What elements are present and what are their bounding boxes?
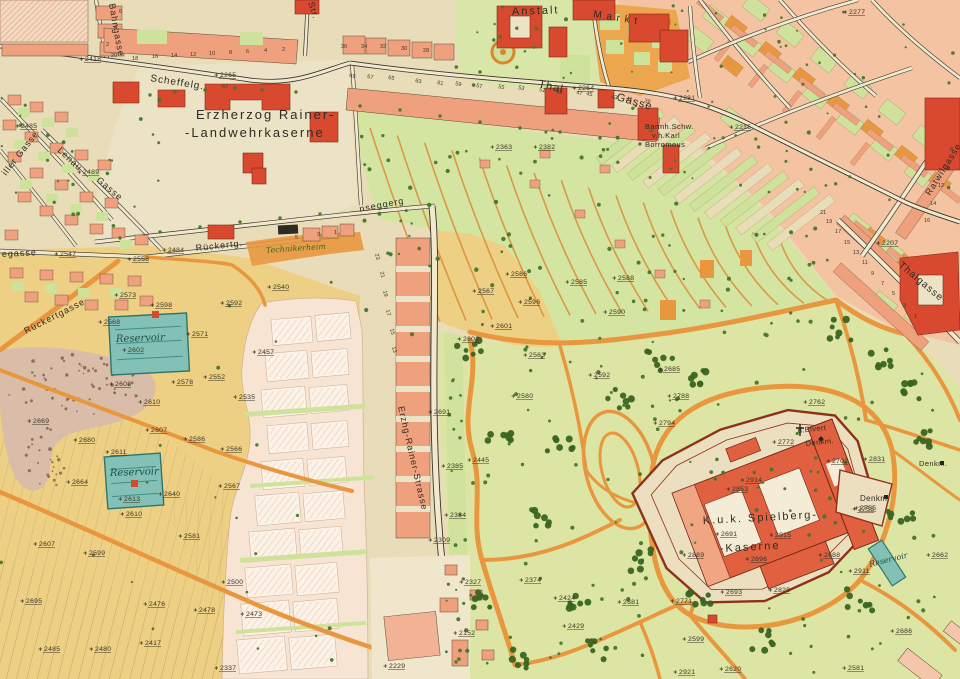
elevation-label: 2680 <box>79 437 95 444</box>
tree-icon <box>648 546 655 553</box>
elevation-label: 2281 <box>679 95 695 102</box>
elevation-label: 2693 <box>726 589 742 596</box>
tree-icon <box>399 220 402 223</box>
elevation-label: 2602 <box>463 336 479 343</box>
elevation-label: 2424 <box>559 595 575 602</box>
tree-icon <box>828 496 832 500</box>
tree-icon <box>763 233 766 236</box>
elevation-label: 2417 <box>145 640 161 647</box>
tree-icon <box>417 247 421 251</box>
tree-icon <box>813 227 817 231</box>
tree-icon <box>726 288 730 292</box>
tree-icon <box>692 601 699 608</box>
house <box>70 272 83 282</box>
tree-icon <box>471 481 475 485</box>
elevation-label: 2607 <box>151 427 167 434</box>
tree-icon <box>757 486 760 489</box>
elevation-label: 2681 <box>623 599 639 606</box>
tree-icon <box>814 456 817 459</box>
building-plot <box>237 636 288 674</box>
street-label: Barmh.Schw. <box>645 122 694 131</box>
tree-icon <box>508 430 515 437</box>
house-number: 57 <box>476 83 483 90</box>
tree-icon <box>870 401 874 405</box>
tree-icon <box>521 463 524 466</box>
elevation-label: 2794 <box>659 420 675 427</box>
tree-icon <box>428 265 431 268</box>
tree-icon <box>844 416 848 420</box>
tree-icon <box>661 233 664 236</box>
tree-icon <box>818 61 821 64</box>
tree-icon <box>721 310 724 313</box>
tree-icon <box>808 263 812 267</box>
tree-icon <box>652 357 658 363</box>
tree-icon <box>238 220 241 223</box>
tree-icon <box>862 530 865 533</box>
tree-icon <box>878 584 881 587</box>
tree-icon <box>690 523 693 526</box>
street-label: Denkm. <box>860 494 890 503</box>
elevation-label: 2374 <box>525 577 541 584</box>
tree-icon <box>472 595 479 602</box>
tree-icon <box>845 604 851 610</box>
tree-icon <box>783 487 786 490</box>
tree-icon <box>758 627 764 633</box>
house-number: 55 <box>498 84 505 91</box>
tree-icon <box>585 599 592 606</box>
tree-icon <box>625 404 630 409</box>
tree-icon <box>533 160 537 164</box>
tree-icon <box>814 489 818 493</box>
house <box>115 300 128 310</box>
tree-icon <box>785 44 788 47</box>
tree-icon <box>548 420 551 423</box>
tree-icon <box>857 417 860 420</box>
tree-icon <box>709 470 713 474</box>
map-viewport[interactable]: BahngasseStr.Scheffelg.AnstaltM a r k tT… <box>0 0 960 679</box>
tree-icon <box>535 539 538 542</box>
tree-icon <box>456 151 460 155</box>
tree-icon <box>754 233 758 237</box>
elevation-label: 2586 <box>189 436 205 443</box>
tree-icon <box>233 86 236 89</box>
tree-icon <box>408 186 412 190</box>
tree-icon <box>876 362 882 368</box>
tree-icon <box>57 180 59 182</box>
elevation-label: 2571 <box>192 331 208 338</box>
tree-icon <box>460 420 463 423</box>
tree-icon <box>553 437 559 443</box>
historical-city-map: BahngasseStr.Scheffelg.AnstaltM a r k tT… <box>0 0 960 679</box>
elevation-label: 2620 <box>725 666 741 673</box>
building-plot <box>267 422 309 453</box>
tree-icon <box>660 355 666 361</box>
tree-icon <box>789 652 792 655</box>
elevation-label: 2599 <box>688 636 704 643</box>
house-number: 10 <box>944 166 950 172</box>
tree-icon <box>360 135 364 139</box>
tree-icon <box>820 559 823 562</box>
elevation-label: 2484 <box>168 247 184 254</box>
tree-icon <box>377 212 381 216</box>
elevation-label: 2476 <box>149 601 165 608</box>
building-plot <box>315 313 351 342</box>
tree-icon <box>471 604 477 610</box>
elevation-label: 2207 <box>882 240 898 247</box>
tree-icon <box>472 83 476 87</box>
tree-icon <box>445 650 448 653</box>
tree-icon <box>549 656 552 659</box>
tree-icon <box>501 5 504 8</box>
tree-icon <box>139 117 143 121</box>
elevation-label: 2598 <box>156 302 172 309</box>
tree-icon <box>368 167 372 171</box>
tree-icon <box>858 599 863 604</box>
tree-icon <box>598 136 601 139</box>
house <box>540 150 550 158</box>
tree-icon <box>638 472 642 476</box>
house-number: 67 <box>222 84 228 90</box>
tree-icon <box>805 235 808 238</box>
elevation-label: 2568 <box>104 319 120 326</box>
tree-icon <box>71 213 75 217</box>
house <box>40 270 53 280</box>
elevation-label: 2915 <box>775 532 791 539</box>
tree-icon <box>648 270 652 274</box>
tree-icon <box>260 88 263 91</box>
elevation-label: 2611 <box>111 449 127 456</box>
house <box>8 95 21 105</box>
tree-icon <box>715 458 719 462</box>
tree-icon <box>568 446 574 452</box>
tree-icon <box>641 375 645 379</box>
elevation-label: 2473 <box>246 611 262 618</box>
tree-icon <box>458 436 461 439</box>
house-number: 61 <box>437 80 444 87</box>
tree-icon <box>46 133 50 137</box>
tree-icon <box>905 46 907 48</box>
tree-icon <box>644 349 650 355</box>
tree-icon <box>544 131 547 134</box>
tree-icon <box>887 358 893 364</box>
house-number: 30 <box>401 46 407 52</box>
tree-icon <box>566 436 573 443</box>
tree-icon <box>777 40 781 44</box>
house-number: 5 <box>295 235 298 241</box>
tree-icon <box>916 396 921 401</box>
garden-plot <box>120 240 132 249</box>
tree-icon <box>639 541 643 545</box>
tree-icon <box>19 115 21 117</box>
elevation-label: 2327 <box>465 579 481 586</box>
tree-icon <box>822 514 826 518</box>
house-number: 16 <box>152 54 158 60</box>
tree-icon <box>753 471 756 474</box>
house <box>575 210 585 218</box>
tree-icon <box>607 247 611 251</box>
garden-plot <box>96 212 108 221</box>
tree-icon <box>533 523 539 529</box>
house-number: 28 <box>423 48 429 54</box>
tree-icon <box>786 150 788 152</box>
tree-icon <box>498 35 502 39</box>
tree-icon <box>888 363 894 369</box>
tree-icon <box>457 657 461 661</box>
tree-icon <box>784 160 787 163</box>
tree-icon <box>551 129 554 132</box>
house <box>5 230 18 240</box>
tree-icon <box>947 186 950 189</box>
tree-icon <box>652 235 655 238</box>
tree-icon <box>459 394 462 397</box>
tree-icon <box>598 337 601 340</box>
tree-icon <box>318 212 321 215</box>
house-number: 14 <box>930 201 936 207</box>
tree-icon <box>599 638 602 641</box>
tree-icon <box>465 150 468 153</box>
house <box>600 165 610 173</box>
tree-icon <box>871 647 874 650</box>
tree-icon <box>509 656 516 663</box>
elevation-label: 2540 <box>273 284 289 291</box>
tree-icon <box>615 521 617 523</box>
tree-icon <box>1 145 3 147</box>
tree-icon <box>451 470 453 472</box>
tree-icon <box>631 71 633 73</box>
tree-icon <box>24 104 27 107</box>
orchard-plot <box>700 260 714 278</box>
tree-icon <box>682 309 685 312</box>
tree-icon <box>447 583 450 586</box>
house-number: 49 <box>556 89 563 96</box>
tree-icon <box>774 95 777 98</box>
elevation-label: 2610 <box>126 511 142 518</box>
tree-icon <box>216 366 220 370</box>
tree-icon <box>768 191 771 194</box>
elevation-label: 2772 <box>778 439 794 446</box>
tree-icon <box>847 635 851 639</box>
elevation-label: 2337 <box>220 665 236 672</box>
tree-icon <box>801 617 805 621</box>
tree-icon <box>438 114 441 117</box>
house-number: 12 <box>190 52 196 58</box>
tree-icon <box>840 571 843 574</box>
tree-icon <box>455 65 459 69</box>
house <box>100 274 113 284</box>
tree-icon <box>674 202 678 206</box>
tree-icon <box>947 81 950 84</box>
tree-icon <box>509 636 512 639</box>
elevation-label: 2755 <box>858 506 874 513</box>
tree-icon <box>113 392 116 395</box>
tree-icon <box>254 552 257 555</box>
tree-icon <box>275 340 278 343</box>
elevation-label: 2608 <box>115 381 131 388</box>
tree-icon <box>653 417 657 421</box>
tree-icon <box>910 516 916 522</box>
tree-icon <box>643 308 647 312</box>
tree-icon <box>926 443 933 450</box>
house-number: 4 <box>264 48 267 54</box>
tree-icon <box>678 409 681 412</box>
tree-icon <box>831 317 837 323</box>
elevation-label: 2695 <box>26 598 42 605</box>
tree-icon <box>690 381 697 388</box>
tree-icon <box>770 322 773 325</box>
tree-icon <box>854 73 856 75</box>
tree-icon <box>715 12 718 15</box>
tree-icon <box>501 250 504 253</box>
tree-icon <box>454 660 457 663</box>
building-plot <box>245 564 293 598</box>
tree-icon <box>599 154 603 158</box>
tree-icon <box>389 252 393 256</box>
tree-icon <box>796 30 798 32</box>
house-number: 67 <box>367 74 374 81</box>
tree-icon <box>928 428 933 433</box>
tree-icon <box>330 281 333 284</box>
tree-icon <box>507 232 511 236</box>
tree-icon <box>203 88 206 91</box>
tree-icon <box>809 168 812 171</box>
orchard-plot <box>740 250 752 266</box>
tree-icon <box>670 71 672 73</box>
tree-icon <box>801 83 804 86</box>
tree-icon <box>669 399 671 401</box>
tree-icon <box>118 236 121 239</box>
tree-icon <box>848 338 853 343</box>
tree-icon <box>789 311 792 314</box>
tree-icon <box>912 536 916 540</box>
tree-icon <box>487 431 494 438</box>
tree-icon <box>434 161 438 165</box>
tree-icon <box>235 517 238 520</box>
tree-icon <box>524 562 528 566</box>
elevation-label: 2911 <box>854 568 870 575</box>
tree-icon <box>538 266 542 270</box>
tree-icon <box>398 108 401 111</box>
garden-plot <box>70 204 82 213</box>
tree-icon <box>569 361 572 364</box>
tree-icon <box>616 161 619 164</box>
house-number: 45 <box>586 91 593 98</box>
elevation-label: 2588 <box>618 275 634 282</box>
elevation-label: 2601 <box>496 323 512 330</box>
house <box>55 295 68 305</box>
elevation-label: 2853 <box>732 486 748 493</box>
house-number: 17 <box>835 229 841 235</box>
tree-icon <box>157 98 161 102</box>
tree-icon <box>577 601 583 607</box>
house <box>10 268 23 278</box>
house-number: 12 <box>938 183 944 189</box>
elevation-label: 2590 <box>609 309 625 316</box>
tree-icon <box>902 23 905 26</box>
building-plot <box>289 634 338 670</box>
tree-icon <box>620 588 624 592</box>
garden-plot <box>12 282 24 291</box>
tree-icon <box>722 136 725 139</box>
tree-icon <box>381 134 384 137</box>
tree-icon <box>62 140 66 144</box>
tree-icon <box>651 405 654 408</box>
elevation-label: 2363 <box>496 144 512 151</box>
elevation-label: 2596 <box>524 299 540 306</box>
elevation-label: 2702 <box>832 458 848 465</box>
tree-icon <box>534 512 541 519</box>
elevation-label: 2889 <box>688 552 704 559</box>
tree-icon <box>765 333 769 337</box>
tree-icon <box>558 130 561 133</box>
elevation-label: 2669 <box>33 418 49 425</box>
tree-icon <box>700 597 706 603</box>
tree-icon <box>483 480 487 484</box>
tree-icon <box>515 27 518 30</box>
elevation-label: 2418 <box>85 56 101 63</box>
elevation-label: 2277 <box>849 9 865 16</box>
street-label: egasse <box>2 247 38 259</box>
elevation-label: 2664 <box>72 479 88 486</box>
tree-icon <box>463 538 467 542</box>
tree-icon <box>257 647 260 650</box>
tree-icon <box>246 591 249 594</box>
tree-icon <box>562 77 564 79</box>
tree-icon <box>518 126 521 129</box>
building-plot <box>311 420 349 449</box>
elevation-label: 2480 <box>95 646 111 653</box>
tree-icon <box>570 526 574 530</box>
tree-icon <box>157 180 159 182</box>
tree-icon <box>670 356 675 361</box>
tree-icon <box>784 121 787 124</box>
house-number: 53 <box>518 85 525 92</box>
tree-icon <box>780 16 783 19</box>
tree-icon <box>638 142 641 145</box>
tree-icon <box>452 428 455 431</box>
tree-icon <box>558 652 561 655</box>
orchard-plot <box>660 300 676 320</box>
elevation-label: 2610 <box>144 399 160 406</box>
elevation-label: 2489 <box>83 169 99 176</box>
tree-icon <box>471 352 476 357</box>
elevation-label: 2563 <box>529 352 545 359</box>
elevation-label: 2914 <box>746 477 762 484</box>
garden-plot <box>66 128 78 137</box>
tree-icon <box>296 514 299 517</box>
tree-icon <box>826 259 829 262</box>
tree-icon <box>157 141 160 144</box>
tree-icon <box>328 626 332 630</box>
tree-icon <box>398 253 400 255</box>
house-number: 3 <box>317 232 320 238</box>
tree-icon <box>67 180 69 182</box>
tree-icon <box>755 381 759 385</box>
tree-icon <box>754 137 757 140</box>
tree-icon <box>15 191 17 193</box>
tree-icon <box>494 200 498 204</box>
elevation-label: 2685 <box>664 366 680 373</box>
tree-icon <box>520 652 527 659</box>
elevation-label: 2581 <box>848 665 864 672</box>
tree-icon <box>768 607 770 609</box>
elevation-label: 2457 <box>258 349 274 356</box>
tree-icon <box>458 649 462 653</box>
tree-icon <box>951 51 955 55</box>
house-number: 2 <box>106 42 109 48</box>
building-plot <box>255 492 301 526</box>
tree-icon <box>787 277 791 281</box>
tree-icon <box>456 617 460 621</box>
